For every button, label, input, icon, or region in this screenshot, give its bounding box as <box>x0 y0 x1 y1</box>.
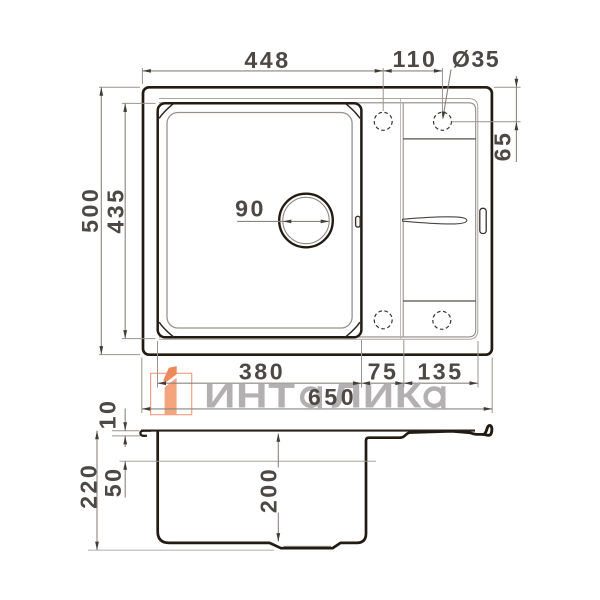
svg-text:75: 75 <box>368 359 399 385</box>
svg-text:200: 200 <box>256 467 282 513</box>
svg-text:220: 220 <box>75 463 101 509</box>
svg-text:Ø35: Ø35 <box>452 46 500 72</box>
svg-text:65: 65 <box>490 131 516 162</box>
svg-text:500: 500 <box>77 187 103 233</box>
svg-text:650: 650 <box>308 384 357 410</box>
svg-text:448: 448 <box>244 47 290 73</box>
svg-text:90: 90 <box>235 196 266 222</box>
svg-text:110: 110 <box>393 46 438 72</box>
svg-text:50: 50 <box>100 467 126 498</box>
svg-text:380: 380 <box>239 359 285 385</box>
svg-text:135: 135 <box>417 359 463 385</box>
svg-text:435: 435 <box>102 187 128 233</box>
svg-text:10: 10 <box>95 399 121 430</box>
